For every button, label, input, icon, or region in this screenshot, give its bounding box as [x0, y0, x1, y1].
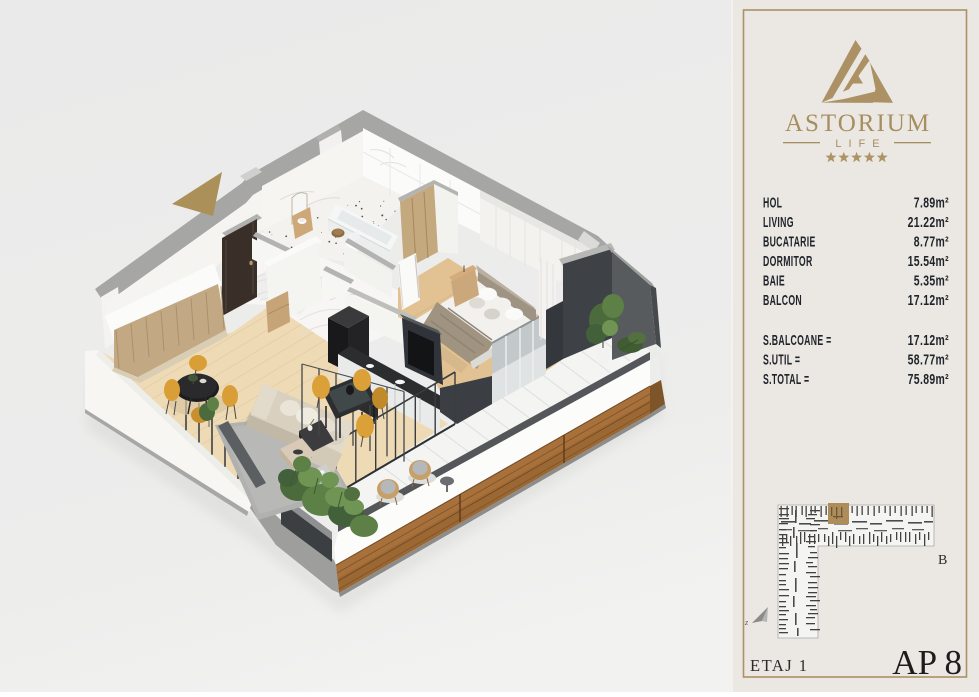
- svg-text:ASTORIUM: ASTORIUM: [785, 110, 931, 137]
- svg-text:17.12m²: 17.12m²: [908, 292, 949, 308]
- svg-text:8.77m²: 8.77m²: [914, 234, 949, 250]
- svg-text:S.BALCOANE =: S.BALCOANE =: [763, 332, 832, 349]
- svg-text:S.UTIL =: S.UTIL =: [763, 351, 800, 368]
- svg-text:ETAJ 1: ETAJ 1: [750, 656, 809, 675]
- svg-text:BAIE: BAIE: [763, 272, 785, 289]
- svg-text:5.35m²: 5.35m²: [914, 273, 949, 289]
- svg-text:BALCON: BALCON: [763, 292, 802, 309]
- svg-text:7.89m²: 7.89m²: [914, 195, 949, 211]
- svg-text:AP 8: AP 8: [892, 643, 962, 682]
- svg-text:58.77m²: 58.77m²: [908, 352, 949, 368]
- svg-text:LIVING: LIVING: [763, 214, 794, 231]
- svg-text:B: B: [938, 553, 947, 568]
- svg-text:HOL: HOL: [763, 194, 782, 211]
- svg-text:DORMITOR: DORMITOR: [763, 253, 813, 270]
- svg-text:21.22m²: 21.22m²: [908, 214, 949, 230]
- svg-text:15.54m²: 15.54m²: [908, 253, 949, 269]
- svg-text:17.12m²: 17.12m²: [908, 332, 949, 348]
- svg-text:LIFE: LIFE: [835, 138, 886, 150]
- svg-text:BUCATARIE: BUCATARIE: [763, 233, 816, 250]
- svg-text:S.TOTAL =: S.TOTAL =: [763, 371, 809, 388]
- svg-text:75.89m²: 75.89m²: [908, 371, 949, 387]
